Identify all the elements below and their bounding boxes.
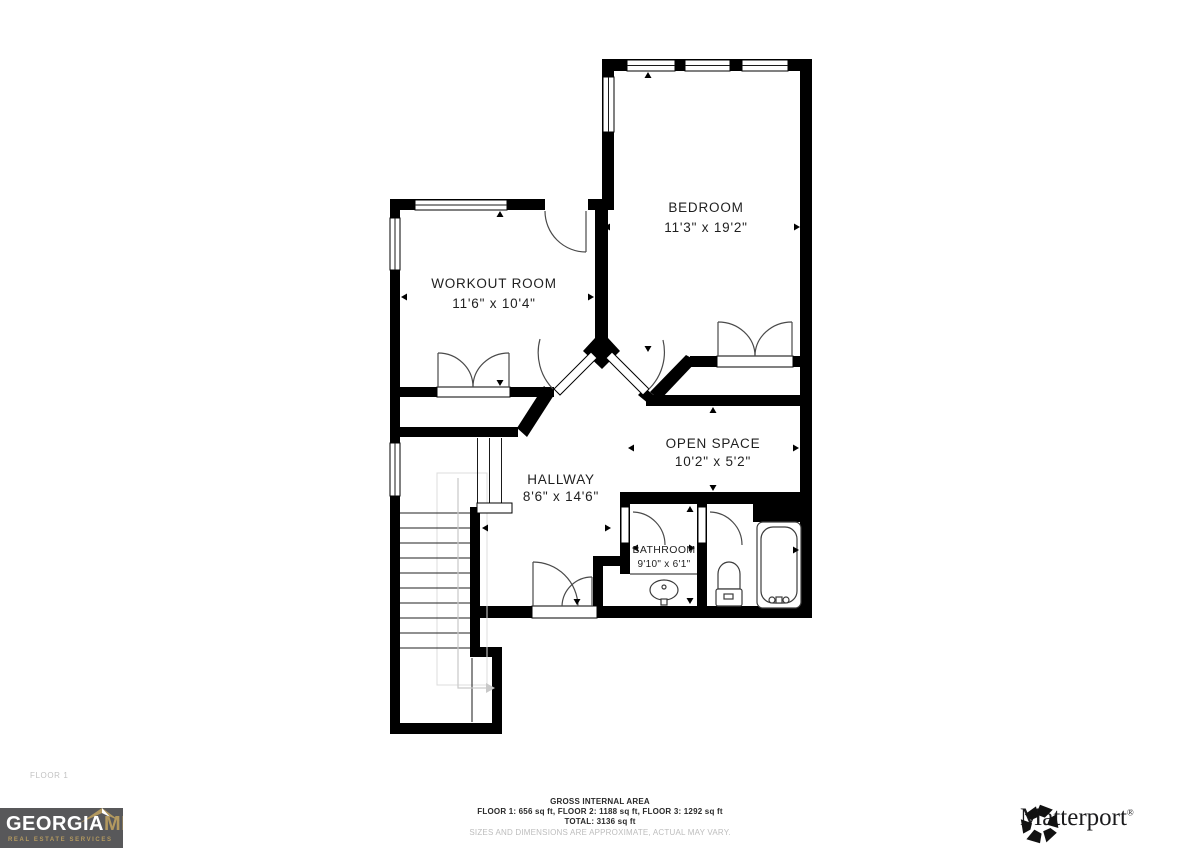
georgia-mls-word1: GEORGIA: [6, 813, 104, 835]
door-threshold: [437, 387, 510, 397]
dimension-arrow: [605, 525, 611, 532]
wall-segment: [800, 59, 812, 618]
stair-landing-cap: [477, 503, 512, 513]
wall-segment: [646, 395, 812, 406]
door-arc: [710, 512, 742, 545]
room-dims-workout-room: 11'6" x 10'4": [452, 296, 535, 311]
door-arc: [633, 512, 665, 545]
toilet-icon: [716, 562, 742, 606]
dimension-arrow: [628, 445, 634, 452]
room-label-workout-room: WORKOUT ROOM: [431, 276, 557, 291]
dimension-arrow: [645, 72, 652, 78]
georgia-mls-word2: MLS: [104, 813, 123, 835]
room-dims-hallway: 8'6" x 14'6": [523, 489, 599, 504]
door-panel: [698, 507, 706, 543]
wall-segment: [620, 492, 812, 504]
room-label-open-space: OPEN SPACE: [666, 436, 761, 451]
dimension-arrow: [710, 485, 717, 491]
room-dims-bedroom: 11'3" x 19'2": [664, 220, 747, 235]
dimension-arrow: [794, 224, 800, 231]
dimension-arrow: [482, 525, 488, 532]
wall-diagonal: [650, 355, 697, 400]
door-arc: [718, 322, 755, 356]
floor-plan-page: BEDROOM 11'3" x 19'2" WORKOUT ROOM 11'6"…: [0, 0, 1200, 848]
wall-segment: [492, 647, 502, 734]
door-arc: [755, 322, 792, 356]
registered-mark: ®: [1127, 808, 1134, 818]
door-panel: [621, 507, 629, 543]
door-threshold: [717, 356, 793, 367]
floor-tag: FLOOR 1: [30, 771, 68, 780]
door-opening: [545, 199, 588, 210]
wall-block: [753, 504, 801, 522]
dimension-arrow: [401, 294, 407, 301]
wall-segment: [395, 427, 518, 437]
dimension-arrow: [588, 294, 594, 301]
door-arc: [538, 339, 553, 389]
door-arc: [545, 211, 586, 252]
door-arc: [473, 353, 509, 387]
dimension-arrow: [645, 346, 652, 352]
dimension-arrow: [793, 445, 799, 452]
wall-segment: [595, 201, 608, 351]
door-arc: [533, 562, 578, 606]
georgia-mls-logo: GEORGIAMLS REAL ESTATE SERVICES: [0, 808, 123, 848]
matterport-pinwheel-icon: [1020, 804, 1060, 844]
door-panel: [554, 352, 597, 395]
room-label-bathroom: BATHROOM: [632, 544, 695, 556]
dimension-arrow: [687, 598, 694, 604]
bathtub-icon: [757, 522, 801, 608]
dimension-arrow: [710, 407, 717, 413]
sink-icon: [650, 580, 678, 605]
door-threshold: [532, 606, 597, 618]
room-dims-bathroom: 9'10" x 6'1": [638, 559, 691, 570]
door-arc: [438, 353, 473, 387]
floor-plan-svg: BEDROOM 11'3" x 19'2" WORKOUT ROOM 11'6"…: [0, 0, 1200, 795]
dimension-arrow: [497, 380, 504, 386]
room-label-bedroom: BEDROOM: [668, 200, 743, 215]
door-panel: [606, 352, 649, 395]
dimension-arrow: [574, 599, 581, 605]
matterport-logo: Matterport®: [1020, 804, 1134, 832]
wall-segment: [390, 723, 502, 734]
wall-segment: [593, 556, 628, 566]
dimension-arrow: [497, 211, 504, 217]
room-dims-open-space: 10'2" x 5'2": [675, 454, 751, 469]
wall-segment: [470, 507, 480, 652]
georgia-mls-tagline: REAL ESTATE SERVICES: [8, 837, 113, 843]
room-label-hallway: HALLWAY: [527, 472, 595, 487]
dimension-arrow: [687, 506, 694, 512]
